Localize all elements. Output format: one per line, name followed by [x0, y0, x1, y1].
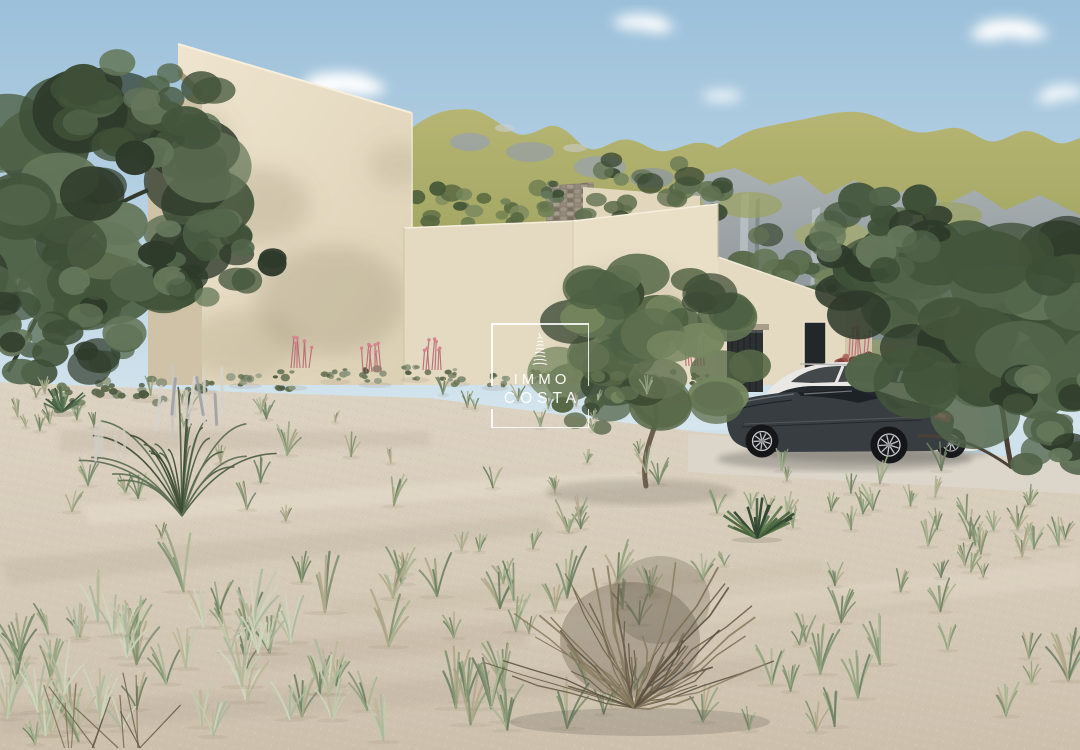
olive-foliage	[157, 63, 183, 83]
grass-tuft	[966, 495, 967, 520]
grass-tuft	[100, 669, 101, 725]
rooftop-shrub	[657, 188, 684, 207]
olive-foliage	[84, 284, 107, 300]
watermark-frame-left	[491, 409, 493, 428]
grass-plume	[102, 427, 103, 456]
rooftop-shrub	[552, 190, 564, 198]
rooftop-shrub	[601, 153, 623, 168]
bush	[281, 374, 290, 382]
watermark-frame-right	[588, 409, 590, 428]
olive-foliage	[874, 346, 960, 419]
bush	[273, 375, 278, 378]
bush	[255, 373, 262, 378]
bush	[208, 381, 213, 385]
bush	[109, 388, 118, 395]
grass-tuft	[910, 491, 911, 506]
bush	[238, 374, 244, 379]
bush	[362, 375, 368, 379]
property-render: IMMO COSTA	[0, 0, 1080, 750]
grass-tuft	[98, 570, 99, 622]
rooftop-shrub	[423, 210, 441, 221]
olive-foliage	[1010, 453, 1043, 476]
bush	[343, 371, 351, 376]
olive-foliage	[693, 382, 738, 409]
pink-flower	[310, 346, 313, 349]
watermark-frame-top	[491, 323, 589, 325]
olive-foliage	[232, 268, 263, 294]
bush	[425, 369, 432, 375]
rooftop-shrub	[429, 181, 446, 195]
olive-foliage	[205, 209, 239, 238]
olive-foliage	[1025, 256, 1075, 296]
pink-flower	[368, 350, 371, 353]
bush	[289, 370, 294, 373]
watermark: IMMO COSTA	[491, 323, 589, 428]
bush-shadow	[359, 382, 392, 388]
rooftop-shrub	[701, 186, 721, 202]
watermark-line2: COSTA	[480, 390, 600, 408]
olive-foliage	[729, 350, 771, 383]
bush	[452, 372, 457, 376]
rooftop-shrub	[541, 191, 553, 199]
dry-bush-shadow	[510, 708, 770, 736]
grass-tuft	[467, 392, 468, 408]
rooftop-shrub	[496, 210, 509, 219]
bush	[118, 393, 126, 399]
bush	[453, 368, 458, 371]
grass-plume	[99, 421, 100, 456]
rooftop-shrub	[549, 181, 559, 188]
olive-foliage	[610, 371, 626, 381]
watermark-frame-bottom	[491, 427, 589, 429]
olive-foliage	[59, 64, 107, 106]
grass-tuft	[851, 515, 852, 529]
pink-flower	[360, 346, 363, 349]
olive-foliage	[816, 241, 842, 263]
bush	[414, 365, 420, 369]
rooftop-shrub	[456, 188, 472, 200]
rooftop-shrub	[617, 195, 637, 212]
pink-flower	[374, 350, 377, 353]
bush	[288, 386, 295, 391]
olive-foliage	[594, 279, 640, 320]
rooftop-shrub	[586, 193, 607, 207]
pink-flower	[369, 344, 372, 347]
bush	[328, 375, 334, 379]
grass-tuft	[994, 511, 995, 530]
pink-flower	[295, 336, 298, 339]
olive-foliage	[259, 248, 287, 268]
rooftop-shrub	[500, 198, 510, 205]
rooftop-shrub	[477, 193, 492, 204]
olive-foliage	[156, 220, 182, 237]
rooftop-shrub	[536, 201, 553, 212]
bush	[246, 376, 252, 381]
olive-foliage	[192, 77, 235, 104]
bush	[277, 369, 285, 374]
bush	[381, 371, 386, 375]
wheel-hub	[887, 443, 891, 447]
olive-foliage	[187, 217, 208, 233]
olive-foliage	[195, 242, 218, 261]
watermark-line1: IMMO	[480, 371, 600, 388]
bush	[226, 373, 236, 381]
olive-foliage	[1014, 365, 1051, 391]
rooftop-shrub	[453, 202, 467, 211]
olive-foliage	[869, 187, 901, 206]
olive-foliage	[827, 290, 891, 339]
tower-icon	[529, 330, 551, 370]
olive-foliage	[682, 273, 737, 314]
pink-flower	[438, 346, 441, 349]
rooftop-shrub	[674, 167, 704, 186]
pink-flower	[373, 343, 376, 346]
olive-foliage	[99, 49, 135, 76]
olive-foliage	[60, 166, 125, 220]
bush-shadow	[320, 379, 351, 385]
rooftop-shrub	[637, 173, 663, 194]
olive-foliage	[166, 278, 192, 296]
bush	[57, 382, 67, 391]
rooftop-shrub	[614, 173, 629, 186]
olive-foliage	[115, 141, 154, 176]
bush	[321, 371, 329, 377]
pink-flower	[423, 348, 426, 351]
bush	[404, 364, 411, 371]
grass-plume	[222, 368, 223, 415]
olive-foliage	[2, 359, 40, 385]
grass-tuft	[835, 691, 836, 726]
olive-foliage	[231, 239, 255, 256]
bush	[689, 382, 693, 385]
olive-foliage	[123, 88, 160, 111]
bush	[364, 379, 370, 383]
olive-foliage	[0, 332, 25, 353]
pink-flower	[292, 336, 295, 339]
rooftop-shrub	[751, 249, 779, 272]
olive-foliage	[918, 297, 985, 340]
olive-foliage	[647, 331, 697, 363]
olive-foliage	[161, 106, 209, 137]
grass-plume	[186, 392, 187, 418]
bush	[374, 378, 382, 384]
bush	[451, 382, 458, 387]
olive-foliage	[194, 287, 219, 307]
pink-flower	[426, 347, 429, 350]
olive-foliage	[1002, 393, 1033, 415]
bush	[412, 377, 417, 380]
bush	[279, 385, 285, 390]
pink-flower-stem	[438, 350, 439, 370]
bush	[336, 378, 341, 381]
tree-shadow	[545, 479, 735, 505]
grass-tuft	[851, 474, 852, 493]
pink-flower	[427, 338, 430, 341]
grass-tuft	[1033, 529, 1034, 549]
pink-flower	[376, 342, 379, 345]
red-bush	[842, 354, 849, 360]
narrow-window	[804, 322, 826, 370]
grass-plume	[124, 430, 125, 457]
pink-flower	[435, 340, 438, 343]
olive-foliage	[870, 257, 900, 283]
bush	[343, 368, 348, 371]
rooftop-shrub	[748, 227, 769, 244]
olive-foliage	[1048, 448, 1072, 463]
wheel-hub	[760, 439, 764, 443]
grass-plume	[215, 394, 217, 424]
olive-foliage	[902, 230, 941, 262]
grass-tuft	[935, 476, 936, 497]
bush	[332, 369, 338, 374]
rooftop-shrub	[465, 205, 483, 217]
grass-tuft	[1005, 684, 1006, 715]
olive-foliage	[42, 319, 83, 345]
bush	[405, 371, 412, 375]
olive-foliage	[138, 241, 176, 266]
olive-foliage	[616, 386, 639, 400]
olive-foliage	[102, 316, 146, 351]
pink-flower	[303, 339, 306, 342]
